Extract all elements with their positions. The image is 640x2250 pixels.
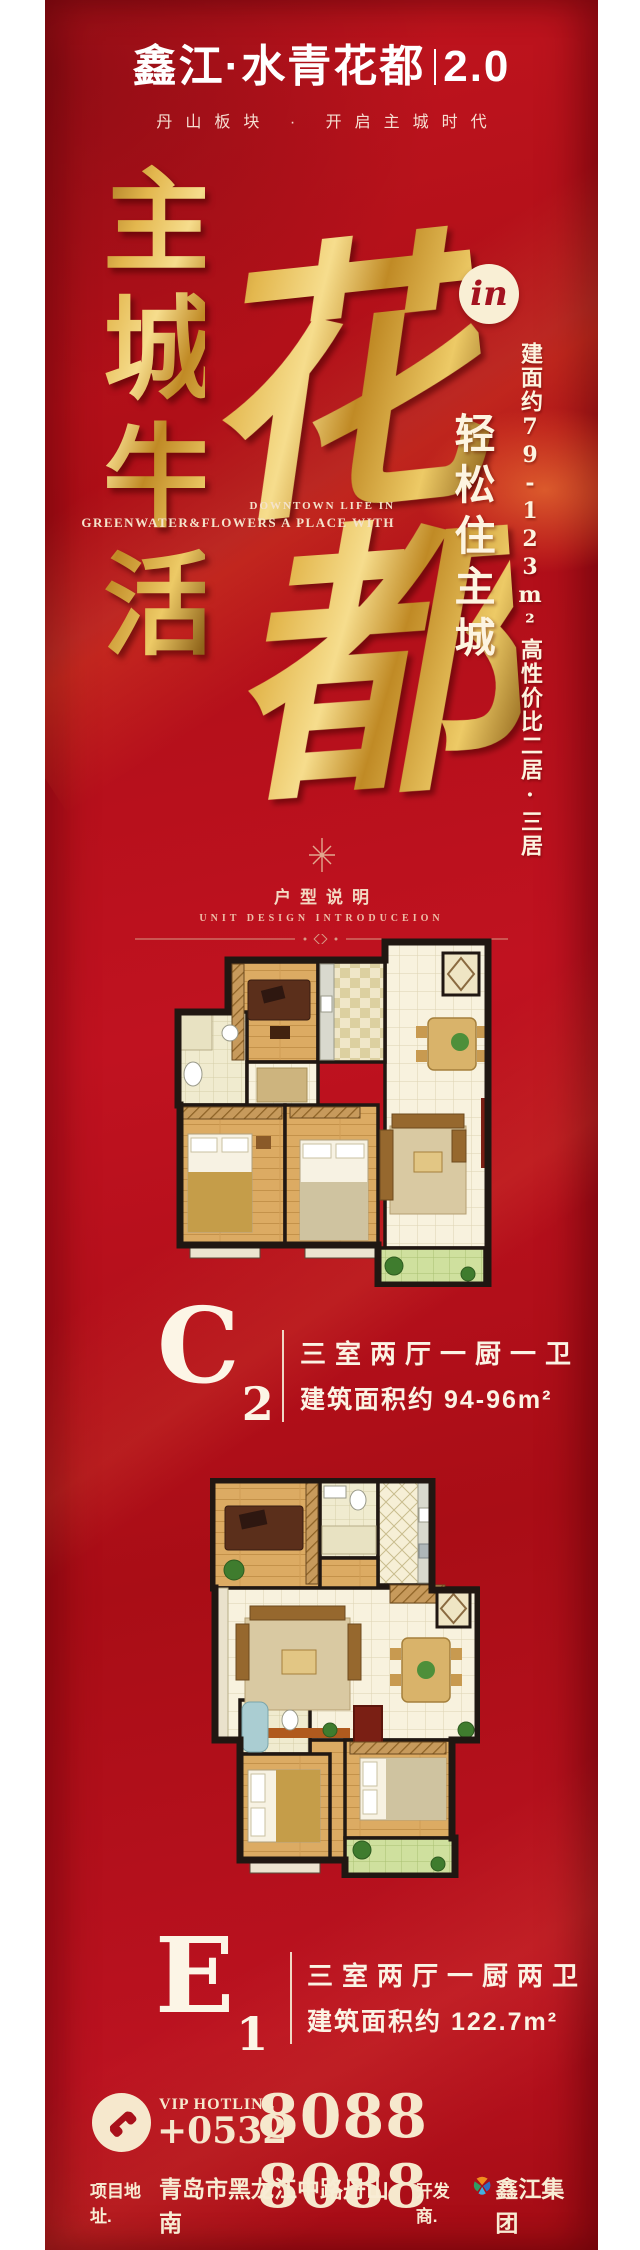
unit-e1-rooms: 三室两厅一厨两卫 bbox=[307, 1956, 587, 1993]
brand-separator bbox=[434, 49, 436, 85]
unit-e1-divider bbox=[290, 1952, 292, 2044]
address-value: 青岛市黑龙江中路丹山南 bbox=[159, 2170, 392, 2238]
poster-canvas: 鑫江·水青花都2.0 丹山板块 · 开启主城时代 主城牛活 花 都 in DOW… bbox=[0, 0, 640, 2250]
brand-logo: 鑫江·水青花都2.0 bbox=[45, 30, 598, 94]
divider-subtitle: UNIT DESIGN INTRODUCEION bbox=[45, 913, 598, 924]
unit-e1-letter: E bbox=[155, 1914, 234, 2037]
poster: 鑫江·水青花都2.0 丹山板块 · 开启主城时代 主城牛活 花 都 in DOW… bbox=[45, 0, 598, 2250]
divider-title: 户型说明 bbox=[45, 883, 598, 908]
star-icon bbox=[303, 838, 341, 872]
unit-e1-description: 三室两厅一厨两卫 建筑面积约 122.7m² bbox=[307, 1956, 587, 2038]
footer: 项目地址. 青岛市黑龙江中路丹山南 开发商. 鑫江集团 bbox=[90, 2170, 580, 2238]
developer-value: 鑫江集团 bbox=[495, 2170, 580, 2238]
unit-c2-area: 建筑面积约 94-96m² bbox=[300, 1380, 580, 1416]
hero-slogan: 轻松住主城 bbox=[450, 412, 491, 667]
unit-c2-number: 2 bbox=[242, 1377, 274, 1431]
floor-plan-e1 bbox=[210, 1478, 480, 1878]
unit-e1-area: 建筑面积约 122.7m² bbox=[307, 2002, 587, 2038]
english-tagline: DOWNTOWN LIFE IN GREENWATER&FLOWERS A PL… bbox=[73, 500, 395, 531]
floor-plan-c2 bbox=[130, 938, 495, 1287]
unit-c2-description: 三室两厅一厨一卫 建筑面积约 94-96m² bbox=[300, 1334, 580, 1416]
in-badge-text: in bbox=[470, 274, 508, 314]
developer-label: 开发商. bbox=[416, 2177, 467, 2227]
english-tagline-line2: GREENWATER&FLOWERS A PLACE WITH bbox=[73, 515, 395, 531]
unit-c2-letter: C bbox=[157, 1284, 240, 1407]
unit-c2-divider bbox=[282, 1330, 284, 1422]
address-label: 项目地址. bbox=[90, 2177, 157, 2227]
developer-logo-icon bbox=[472, 2175, 492, 2197]
in-badge: in bbox=[459, 264, 519, 324]
brand-name: 鑫江·水青花都 bbox=[133, 42, 426, 91]
unit-e1-code: E1 bbox=[155, 1928, 268, 2055]
unit-c2-code: C2 bbox=[157, 1298, 274, 1425]
section-divider: 户型说明 UNIT DESIGN INTRODUCEION bbox=[45, 838, 598, 949]
brand-version: 2.0 bbox=[443, 42, 510, 91]
brand-subtitle: 丹山板块 · 开启主城时代 bbox=[45, 108, 598, 132]
unit-c2-rooms: 三室两厅一厨一卫 bbox=[300, 1334, 580, 1371]
english-tagline-line1: DOWNTOWN LIFE IN bbox=[73, 500, 395, 512]
hero-spec: 建面约79-123m²高性价比二居·三居 bbox=[519, 342, 541, 858]
unit-e1-number: 1 bbox=[236, 2007, 268, 2061]
phone-icon bbox=[92, 2093, 151, 2152]
